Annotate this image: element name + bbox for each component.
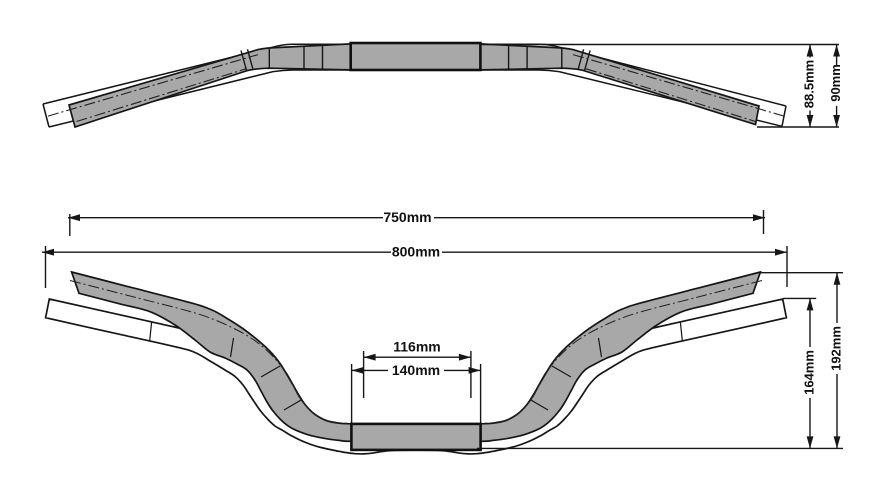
svg-text:750mm: 750mm <box>383 209 431 225</box>
svg-text:164mm: 164mm <box>802 350 817 395</box>
svg-text:140mm: 140mm <box>392 362 440 378</box>
svg-text:90mm: 90mm <box>828 64 843 102</box>
svg-text:192mm: 192mm <box>829 326 844 371</box>
svg-text:800mm: 800mm <box>392 244 440 260</box>
svg-text:88.5mm: 88.5mm <box>802 60 817 108</box>
svg-text:116mm: 116mm <box>393 339 440 355</box>
